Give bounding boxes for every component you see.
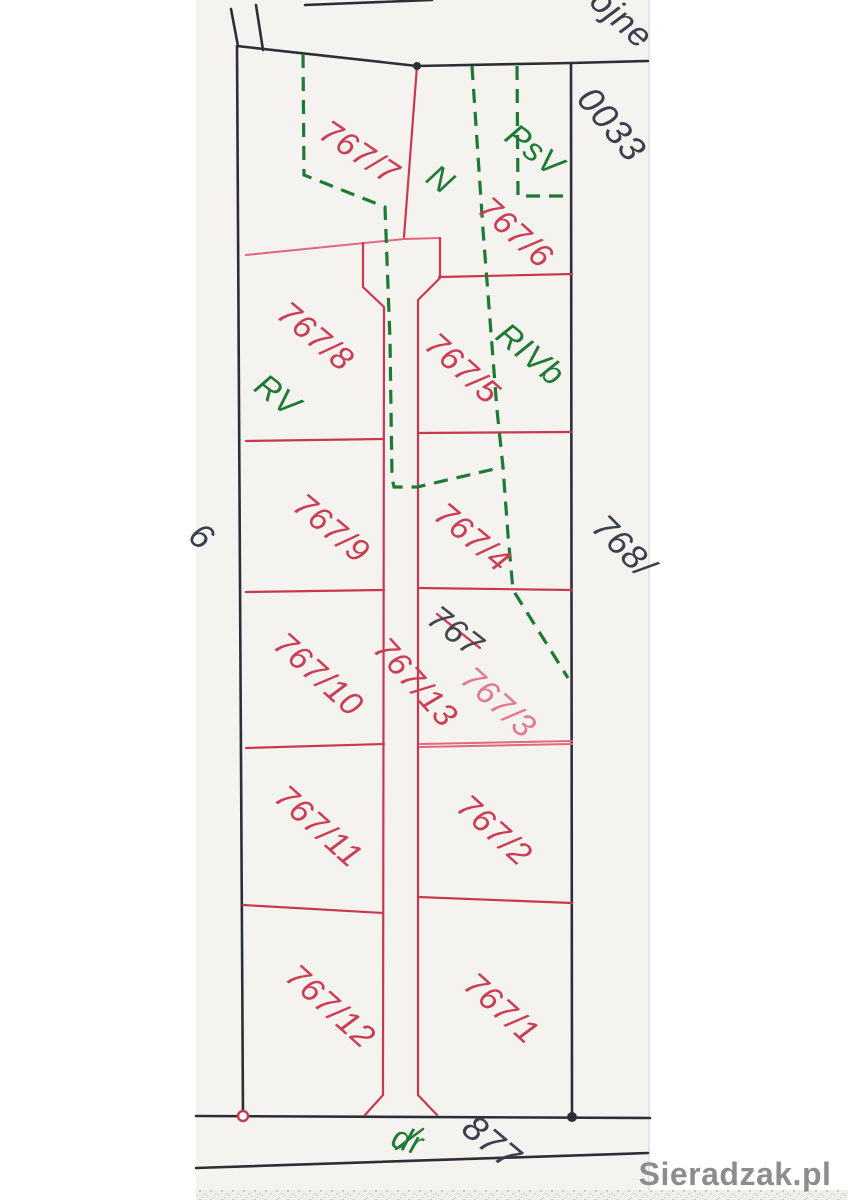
boundary-point-north [413,62,421,70]
boundary-point-southwest [238,1111,248,1121]
cadastral-map: ojne 0033 767/7 N PsV 767/6 767/8 RV 767… [0,0,848,1200]
watermark: Sieradzak.pl [639,1156,832,1192]
row-line-767-5-bottom [418,432,571,433]
scanned-paper-area [196,0,650,1200]
cadastral-map-page: ojne 0033 767/7 N PsV 767/6 767/8 RV 767… [0,0,848,1200]
boundary-point-southeast [567,1112,577,1122]
